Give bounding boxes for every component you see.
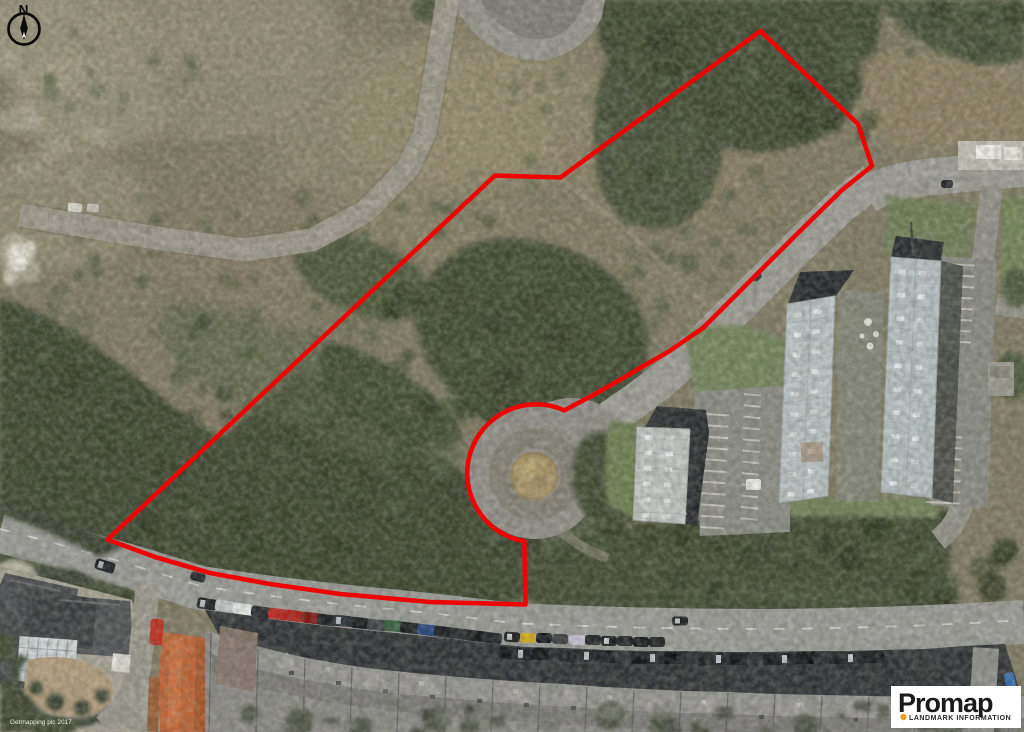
svg-text:Promap: Promap (898, 688, 993, 718)
svg-text:N: N (19, 3, 29, 18)
svg-text:Getmapping plc 2017: Getmapping plc 2017 (10, 719, 72, 726)
svg-text:LANDMARK INFORMATION: LANDMARK INFORMATION (909, 715, 1011, 722)
